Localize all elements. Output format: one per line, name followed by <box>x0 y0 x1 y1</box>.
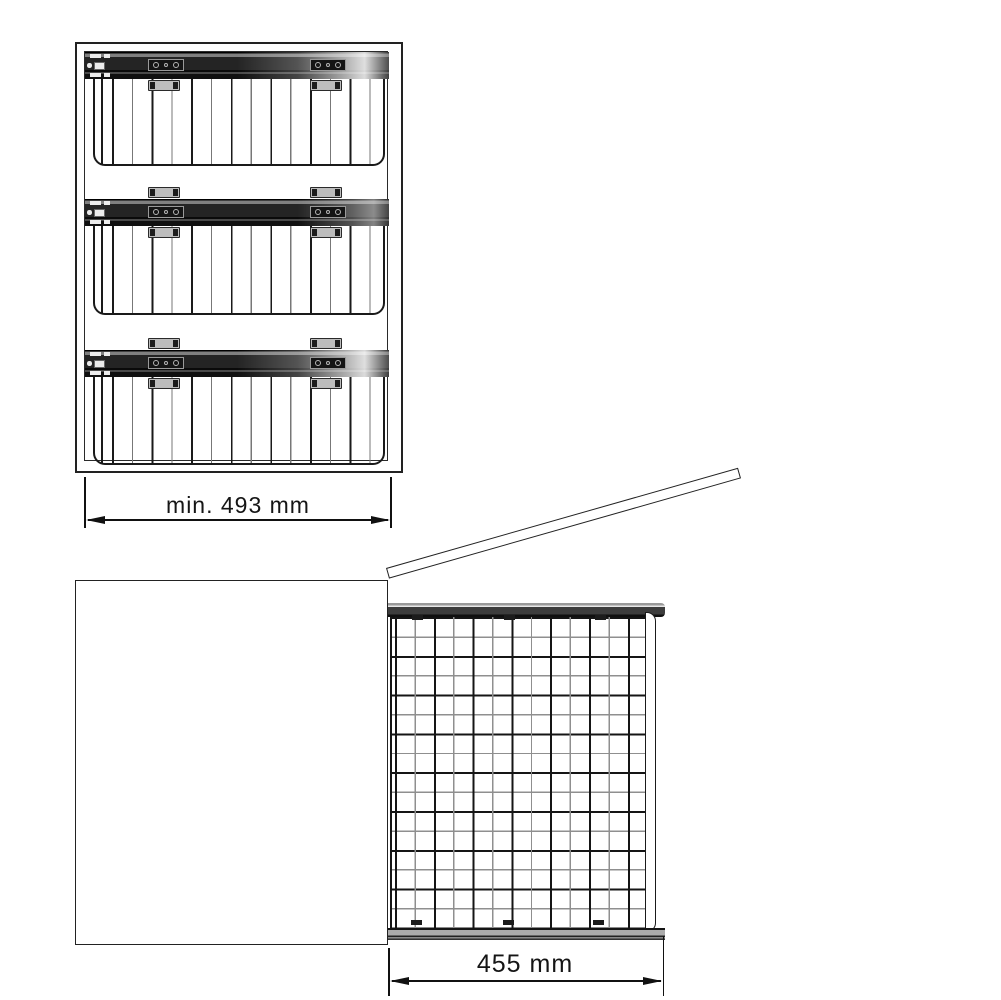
wire-basket-front-2 <box>93 226 385 315</box>
drawer-slide-rail-2 <box>85 199 389 226</box>
slide-end-detail <box>85 350 111 377</box>
front-view-cabinet-outline <box>75 42 403 473</box>
technical-drawing-canvas: min. 493 mm 455 mm <box>0 0 1001 1000</box>
drawer-slide-rail-1 <box>85 52 389 79</box>
open-door-panel <box>386 468 741 579</box>
mounting-bracket <box>310 227 342 238</box>
dimension-arrowhead-left <box>390 977 409 985</box>
basket-front-wall <box>645 612 656 932</box>
basket-clip <box>593 920 604 925</box>
slide-screw-slot <box>148 357 184 369</box>
dimension-label-basket-width: 455 mm <box>425 950 625 979</box>
slide-screw-slot <box>310 206 346 218</box>
basket-clip <box>503 920 514 925</box>
slide-end-detail <box>85 199 111 226</box>
dimension-arrowhead-left <box>86 516 105 524</box>
dimension-line <box>392 980 661 982</box>
mounting-bracket <box>148 227 180 238</box>
basket-slide-rail-top <box>388 603 665 617</box>
mounting-bracket <box>148 187 180 198</box>
basket-clip <box>595 615 606 620</box>
slide-end-detail <box>85 52 111 79</box>
wire-mesh-basket-top-view <box>390 617 652 928</box>
mounting-bracket <box>310 187 342 198</box>
cabinet-side-panel <box>75 580 388 945</box>
mounting-bracket <box>148 338 180 349</box>
slide-screw-slot <box>148 206 184 218</box>
dimension-extension-line-right <box>390 477 392 528</box>
wire-basket-front-1 <box>93 79 385 166</box>
slide-screw-slot <box>148 59 184 71</box>
slide-screw-slot <box>310 357 346 369</box>
slide-screw-slot <box>310 59 346 71</box>
dimension-arrowhead-right <box>643 977 662 985</box>
basket-clip <box>411 920 422 925</box>
wire-basket-front-3 <box>93 377 385 465</box>
mounting-bracket <box>310 338 342 349</box>
dimension-extension-line-right <box>663 936 665 996</box>
dimension-extension-line-left <box>388 948 390 996</box>
dimension-label-cabinet-width: min. 493 mm <box>138 492 338 519</box>
mounting-bracket <box>310 378 342 389</box>
dimension-arrowhead-right <box>371 516 390 524</box>
drawer-slide-rail-3 <box>85 350 389 377</box>
basket-clip <box>412 615 423 620</box>
mounting-bracket <box>148 80 180 91</box>
dimension-line <box>88 519 388 521</box>
basket-slide-rail-bottom <box>388 928 665 940</box>
basket-clip <box>504 615 515 620</box>
mounting-bracket <box>310 80 342 91</box>
mounting-bracket <box>148 378 180 389</box>
